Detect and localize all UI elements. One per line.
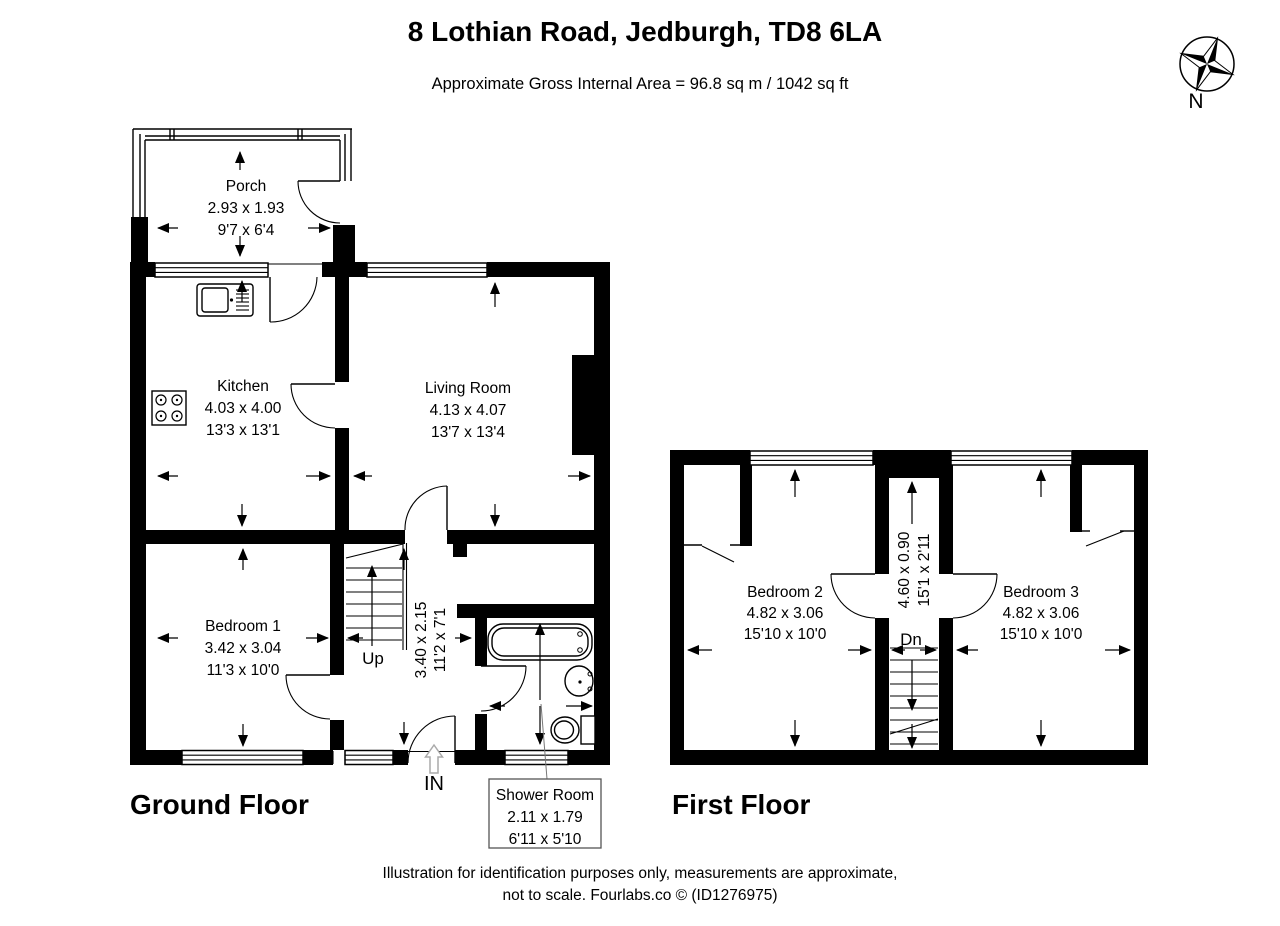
bedroom-2-dims-imperial: 15'10 x 10'0 [744, 626, 827, 643]
chimney-breast [572, 355, 596, 455]
bedroom-1-label: Bedroom 1 3.42 x 3.04 11'3 x 10'0 [205, 618, 282, 679]
landing-label: 4.60 x 0.90 15'1 x 2'11 [896, 531, 933, 608]
bedroom-3-label: Bedroom 3 4.82 x 3.06 15'10 x 10'0 [1000, 584, 1083, 643]
window [505, 751, 568, 765]
area-subtitle: Approximate Gross Internal Area = 96.8 s… [432, 75, 849, 93]
floorplan-canvas: 8 Lothian Road, Jedburgh, TD8 6LA Approx… [0, 0, 1280, 926]
living-room-dims-imperial: 13'7 x 13'4 [431, 424, 505, 441]
sink-icon [197, 284, 253, 316]
porch-label: Porch 2.93 x 1.93 9'7 x 6'4 [208, 178, 285, 239]
door-living-to-hall [405, 486, 447, 530]
shower-room-dims-metric: 2.11 x 1.79 [507, 809, 583, 826]
door-bedroom2 [831, 574, 875, 618]
entrance-arrow-icon [426, 745, 443, 773]
entrance-label: IN [424, 773, 444, 795]
stairs-up-label: Up [362, 649, 384, 668]
ground-floor-plan: Porch 2.93 x 1.93 9'7 x 6'4 Kitchen 4.03… [130, 129, 610, 848]
shower-leader-line [541, 704, 547, 779]
living-room-label: Living Room 4.13 x 4.07 13'7 x 13'4 [425, 380, 511, 441]
ground-floor-windows [155, 263, 568, 765]
bedroom-3-name: Bedroom 3 [1003, 584, 1079, 601]
hall-label: 3.40 x 2.15 11'2 x 7'1 [413, 602, 449, 679]
door-porch-to-kitchen [270, 277, 317, 322]
stairs-down-label: Dn [900, 630, 922, 649]
shower-room-callout: Shower Room 2.11 x 1.79 6'11 x 5'10 [489, 779, 601, 848]
ground-floor-title: Ground Floor [130, 789, 309, 820]
bedroom-1-dims-metric: 3.42 x 3.04 [205, 640, 282, 657]
window [182, 751, 303, 765]
bedroom-1-dims-imperial: 11'3 x 10'0 [207, 662, 280, 679]
compass-icon: N [1171, 28, 1244, 113]
shower-room-name: Shower Room [496, 787, 594, 804]
closet-door-bedroom2 [684, 545, 752, 562]
porch-dims-metric: 2.93 x 1.93 [208, 200, 285, 217]
living-room-dims-metric: 4.13 x 4.07 [430, 402, 507, 419]
bedroom-2-dims-metric: 4.82 x 3.06 [747, 605, 824, 622]
bedroom-3-dims-imperial: 15'10 x 10'0 [1000, 626, 1083, 643]
door-bedroom3 [953, 574, 997, 618]
door-kitchen-to-living [291, 384, 335, 428]
disclaimer-line-2: not to scale. Fourlabs.co © (ID1276975) [502, 887, 777, 904]
kitchen-dims-imperial: 13'3 x 13'1 [206, 422, 280, 439]
door-shower-room [481, 666, 526, 711]
compass-north-label: N [1188, 90, 1203, 113]
first-floor-title: First Floor [672, 789, 811, 820]
washbasin-icon [565, 666, 593, 696]
landing-dims-imperial: 15'1 x 2'11 [916, 534, 933, 607]
window [951, 451, 1072, 465]
first-floor-plan: Bedroom 2 4.82 x 3.06 15'10 x 10'0 Bedro… [670, 450, 1148, 820]
bedroom-2-name: Bedroom 2 [747, 584, 823, 601]
door-bedroom1 [286, 675, 330, 719]
kitchen-label: Kitchen 4.03 x 4.00 13'3 x 13'1 [205, 378, 282, 439]
kitchen-name: Kitchen [217, 378, 269, 395]
window [345, 751, 393, 765]
bedroom-1-name: Bedroom 1 [205, 618, 281, 635]
window [750, 451, 873, 465]
hall-dims-imperial: 11'2 x 7'1 [432, 608, 449, 672]
closet-wall [740, 464, 752, 546]
landing-dims-metric: 4.60 x 0.90 [896, 531, 913, 608]
window [367, 263, 487, 277]
bedroom-3-dims-metric: 4.82 x 3.06 [1003, 605, 1080, 622]
porch-name: Porch [226, 178, 267, 195]
closet-door-bedroom3 [1082, 531, 1134, 546]
ground-floor-doors [270, 277, 526, 763]
shower-room-dims-imperial: 6'11 x 5'10 [509, 831, 582, 848]
kitchen-dims-metric: 4.03 x 4.00 [205, 400, 282, 417]
hall-dims-metric: 3.40 x 2.15 [413, 602, 430, 679]
window [155, 263, 268, 277]
page-title: 8 Lothian Road, Jedburgh, TD8 6LA [408, 16, 882, 47]
bedroom-2-label: Bedroom 2 4.82 x 3.06 15'10 x 10'0 [744, 584, 827, 643]
porch-dims-imperial: 9'7 x 6'4 [218, 222, 275, 239]
porch-door [298, 181, 340, 223]
closet-wall [1070, 464, 1082, 532]
disclaimer-line-1: Illustration for identification purposes… [383, 865, 898, 882]
toilet-icon [551, 716, 595, 744]
stairs-down [890, 648, 938, 744]
stairs-up [346, 543, 407, 650]
hob-icon [152, 391, 186, 425]
living-room-name: Living Room [425, 380, 511, 397]
